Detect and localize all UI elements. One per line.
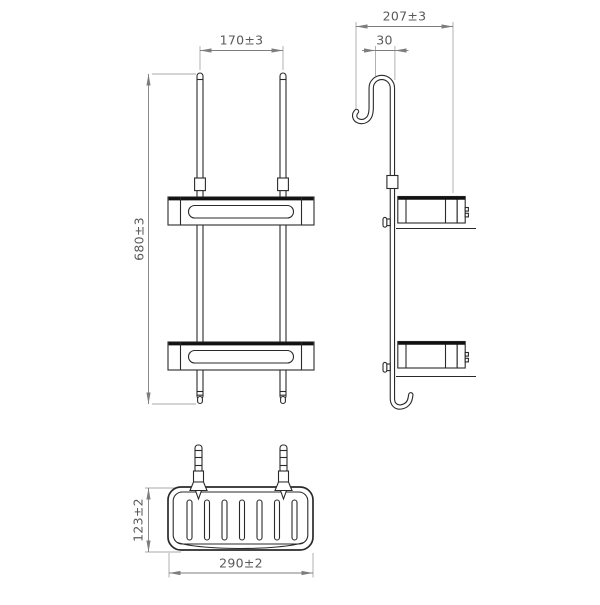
side-hook-opening-label: 30 <box>376 33 393 48</box>
plan-rod-right <box>275 445 292 499</box>
front-shelf-lower <box>168 342 314 370</box>
rod-connector-left <box>195 178 206 191</box>
technical-drawing-page: 170±3 680±3 <box>0 0 600 600</box>
rod-connector-side <box>387 176 398 189</box>
side-shelf-upper <box>396 197 476 229</box>
technical-drawing: 170±3 680±3 <box>0 0 600 600</box>
front-dim-rod-spacing: 170±3 <box>200 33 283 71</box>
front-overall-height-label: 680±3 <box>132 217 147 261</box>
plan-basket-depth-label: 123±2 <box>131 498 146 542</box>
rod-connector-right <box>278 178 289 191</box>
side-view: 207±3 30 <box>355 9 476 408</box>
front-rod-spacing-label: 170±3 <box>220 33 264 48</box>
front-shelf-upper <box>168 197 314 225</box>
plan-basket <box>168 487 313 550</box>
side-overall-depth-label: 207±3 <box>383 9 427 24</box>
front-view: 170±3 680±3 <box>132 33 315 405</box>
plan-rod-left <box>190 445 207 499</box>
plan-view: 123±2 290±2 <box>131 445 314 578</box>
side-shelf-lower <box>396 342 476 377</box>
side-dim-hook-opening: 30 <box>362 33 409 81</box>
plan-dim-basket-width: 290±2 <box>169 553 313 578</box>
side-wall-bumpers <box>383 217 390 372</box>
plan-basket-width-label: 290±2 <box>219 556 263 571</box>
